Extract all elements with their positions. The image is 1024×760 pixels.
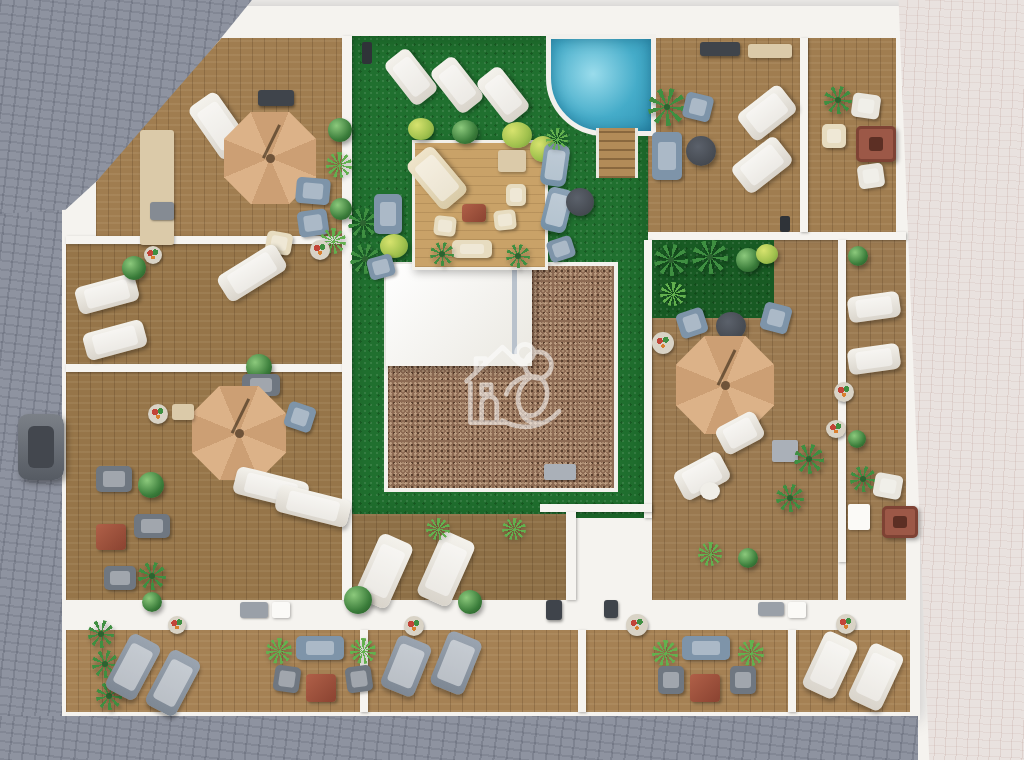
sofa bbox=[104, 566, 136, 590]
flower-planter bbox=[626, 614, 648, 636]
wall-bottomcenter-divider bbox=[566, 512, 576, 600]
deck-mat bbox=[498, 150, 526, 172]
shrub bbox=[848, 246, 868, 266]
coffee-table bbox=[306, 674, 336, 702]
shrub bbox=[502, 122, 532, 148]
umbrella-bottomright bbox=[676, 336, 774, 434]
shrub bbox=[738, 548, 758, 568]
sofa bbox=[682, 636, 730, 660]
sofa bbox=[134, 514, 170, 538]
palm-plant bbox=[430, 242, 454, 266]
armchair bbox=[272, 664, 301, 693]
flower-planter bbox=[404, 616, 424, 636]
pool-steps bbox=[596, 128, 638, 178]
wall-pooldeck-divider bbox=[800, 38, 808, 232]
palm-plant bbox=[850, 466, 876, 492]
flower-planter bbox=[168, 616, 186, 634]
light-post bbox=[780, 216, 790, 232]
parapet-box bbox=[272, 602, 290, 618]
palm-plant bbox=[88, 620, 114, 648]
flower-planter bbox=[836, 614, 856, 634]
flower-planter bbox=[652, 332, 674, 354]
wall-left-lower bbox=[66, 364, 342, 372]
floor-seat bbox=[433, 215, 457, 237]
palm-plant bbox=[654, 244, 688, 276]
parapet-box bbox=[788, 602, 806, 618]
armchair bbox=[856, 162, 885, 189]
fire-table bbox=[882, 506, 918, 538]
flower-planter bbox=[834, 382, 854, 402]
bench-dark bbox=[258, 90, 294, 106]
armchair bbox=[730, 666, 756, 694]
armchair bbox=[850, 92, 881, 120]
side-table bbox=[172, 404, 194, 420]
fire-table bbox=[856, 126, 896, 162]
flower-planter bbox=[144, 246, 162, 264]
rooftop-terrace-render bbox=[0, 0, 1024, 760]
umbrella-bottomleft bbox=[192, 386, 286, 480]
shrub bbox=[848, 430, 866, 448]
palm-plant bbox=[648, 88, 686, 126]
balcony-divider-2 bbox=[578, 630, 586, 712]
sofa bbox=[295, 177, 331, 206]
palm-plant bbox=[824, 86, 852, 114]
parapet-bench bbox=[240, 602, 268, 618]
storage-box bbox=[848, 504, 870, 530]
wall-bottomcenter-top bbox=[540, 504, 652, 512]
balcony-divider-3 bbox=[788, 630, 796, 712]
palm-plant bbox=[776, 484, 804, 512]
plant bbox=[546, 128, 568, 150]
armchair bbox=[658, 666, 684, 694]
coffee-table bbox=[96, 524, 126, 550]
parapet-bench bbox=[758, 602, 784, 616]
plant bbox=[652, 640, 678, 666]
bench-seat bbox=[452, 240, 492, 258]
shrub bbox=[328, 118, 352, 142]
plant bbox=[426, 518, 450, 540]
low-table bbox=[462, 204, 486, 222]
plant bbox=[326, 152, 352, 178]
palm-plant bbox=[794, 444, 824, 474]
outdoor-counter bbox=[140, 130, 174, 245]
entry-landing bbox=[544, 464, 576, 480]
floor-seat bbox=[506, 184, 526, 206]
parked-car bbox=[18, 414, 64, 480]
sofa bbox=[296, 636, 344, 660]
shrub bbox=[756, 244, 778, 264]
rooftop-unit bbox=[700, 42, 740, 56]
palm-plant bbox=[506, 244, 530, 268]
round-table bbox=[566, 188, 594, 216]
wall-courtyard-right bbox=[644, 240, 652, 518]
plant bbox=[698, 542, 722, 566]
palm-plant bbox=[138, 562, 166, 590]
bench-seat bbox=[822, 124, 846, 148]
shrub bbox=[138, 472, 164, 498]
shrub bbox=[452, 120, 478, 144]
floor-seat bbox=[493, 209, 517, 231]
topiary-bush bbox=[344, 586, 372, 614]
shrub bbox=[122, 256, 146, 280]
flower-planter bbox=[826, 420, 846, 438]
plant bbox=[350, 638, 376, 664]
round-table bbox=[716, 312, 746, 340]
armchair bbox=[344, 664, 373, 693]
street-bottom bbox=[0, 716, 918, 760]
sofa bbox=[652, 132, 682, 180]
sofa bbox=[96, 466, 132, 492]
plant bbox=[660, 282, 686, 306]
topiary-bush bbox=[458, 590, 482, 614]
shrub bbox=[408, 118, 434, 140]
outdoor-kitchen bbox=[748, 44, 792, 58]
plant bbox=[738, 640, 764, 666]
plant bbox=[266, 638, 292, 664]
round-table bbox=[686, 136, 716, 166]
light-post bbox=[362, 42, 372, 64]
coffee-table bbox=[690, 674, 720, 702]
palm-plant bbox=[692, 240, 728, 274]
rooftop-unit bbox=[604, 600, 618, 618]
armchair bbox=[872, 472, 904, 500]
lawn-lounge-chair bbox=[374, 194, 402, 234]
watermark-koala-house-logo bbox=[452, 334, 568, 432]
flower-planter bbox=[148, 404, 168, 424]
plant bbox=[502, 518, 526, 540]
flower-planter bbox=[310, 240, 330, 260]
bbq-grill bbox=[150, 202, 174, 220]
rooftop-unit bbox=[546, 600, 562, 620]
wall-right-upper bbox=[648, 232, 906, 240]
wall-left-upper bbox=[66, 236, 342, 244]
side-table bbox=[700, 482, 720, 500]
shrub bbox=[142, 592, 162, 612]
